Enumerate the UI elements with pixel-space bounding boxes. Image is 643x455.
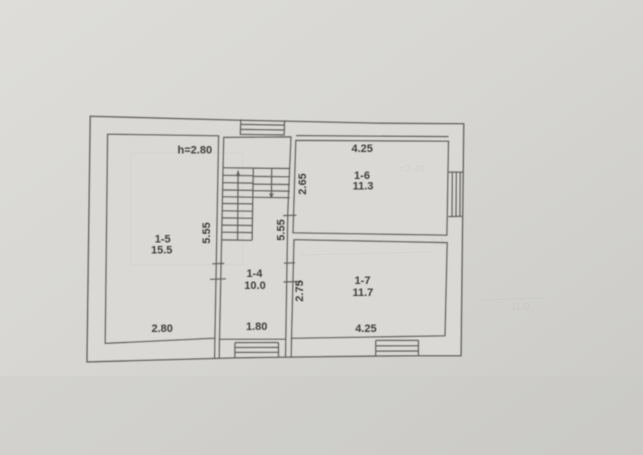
- svg-text:2.65: 2.65: [297, 173, 309, 194]
- svg-text:4.25: 4.25: [355, 323, 376, 335]
- svg-text:5.55: 5.55: [276, 219, 288, 240]
- svg-text:h=2.80: h=2.80: [178, 144, 213, 156]
- svg-text:2.80: 2.80: [151, 323, 172, 335]
- svg-text:10.0: 10.0: [244, 280, 265, 292]
- svg-text:1-7: 1-7: [355, 275, 371, 287]
- svg-text:=2.49: =2.49: [399, 164, 425, 175]
- svg-text:1.80: 1.80: [246, 321, 267, 333]
- svg-text:3.1: 3.1: [431, 237, 445, 248]
- svg-text:15.5: 15.5: [151, 245, 172, 257]
- svg-text:5.55: 5.55: [201, 222, 213, 243]
- svg-text:1-4: 1-4: [246, 268, 263, 280]
- svg-text:11.7: 11.7: [352, 287, 373, 299]
- svg-text:11.3: 11.3: [353, 181, 374, 193]
- svg-text:11.0: 11.0: [511, 302, 530, 313]
- svg-text:4.25: 4.25: [351, 143, 372, 155]
- svg-text:2.75: 2.75: [294, 280, 306, 301]
